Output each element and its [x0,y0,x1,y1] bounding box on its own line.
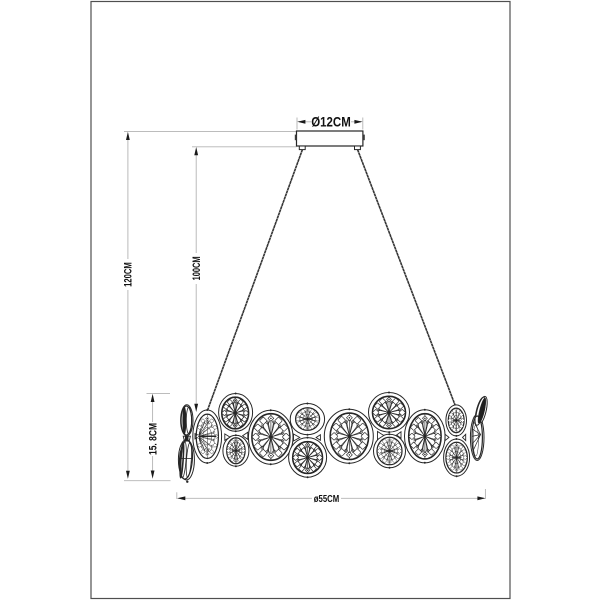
svg-text:15. 8CM: 15. 8CM [147,423,159,455]
svg-text:Ø12CM: Ø12CM [311,114,351,129]
svg-text:120CM: 120CM [123,262,135,287]
svg-text:ø55CM: ø55CM [314,494,340,505]
svg-text:100CM: 100CM [191,256,203,280]
